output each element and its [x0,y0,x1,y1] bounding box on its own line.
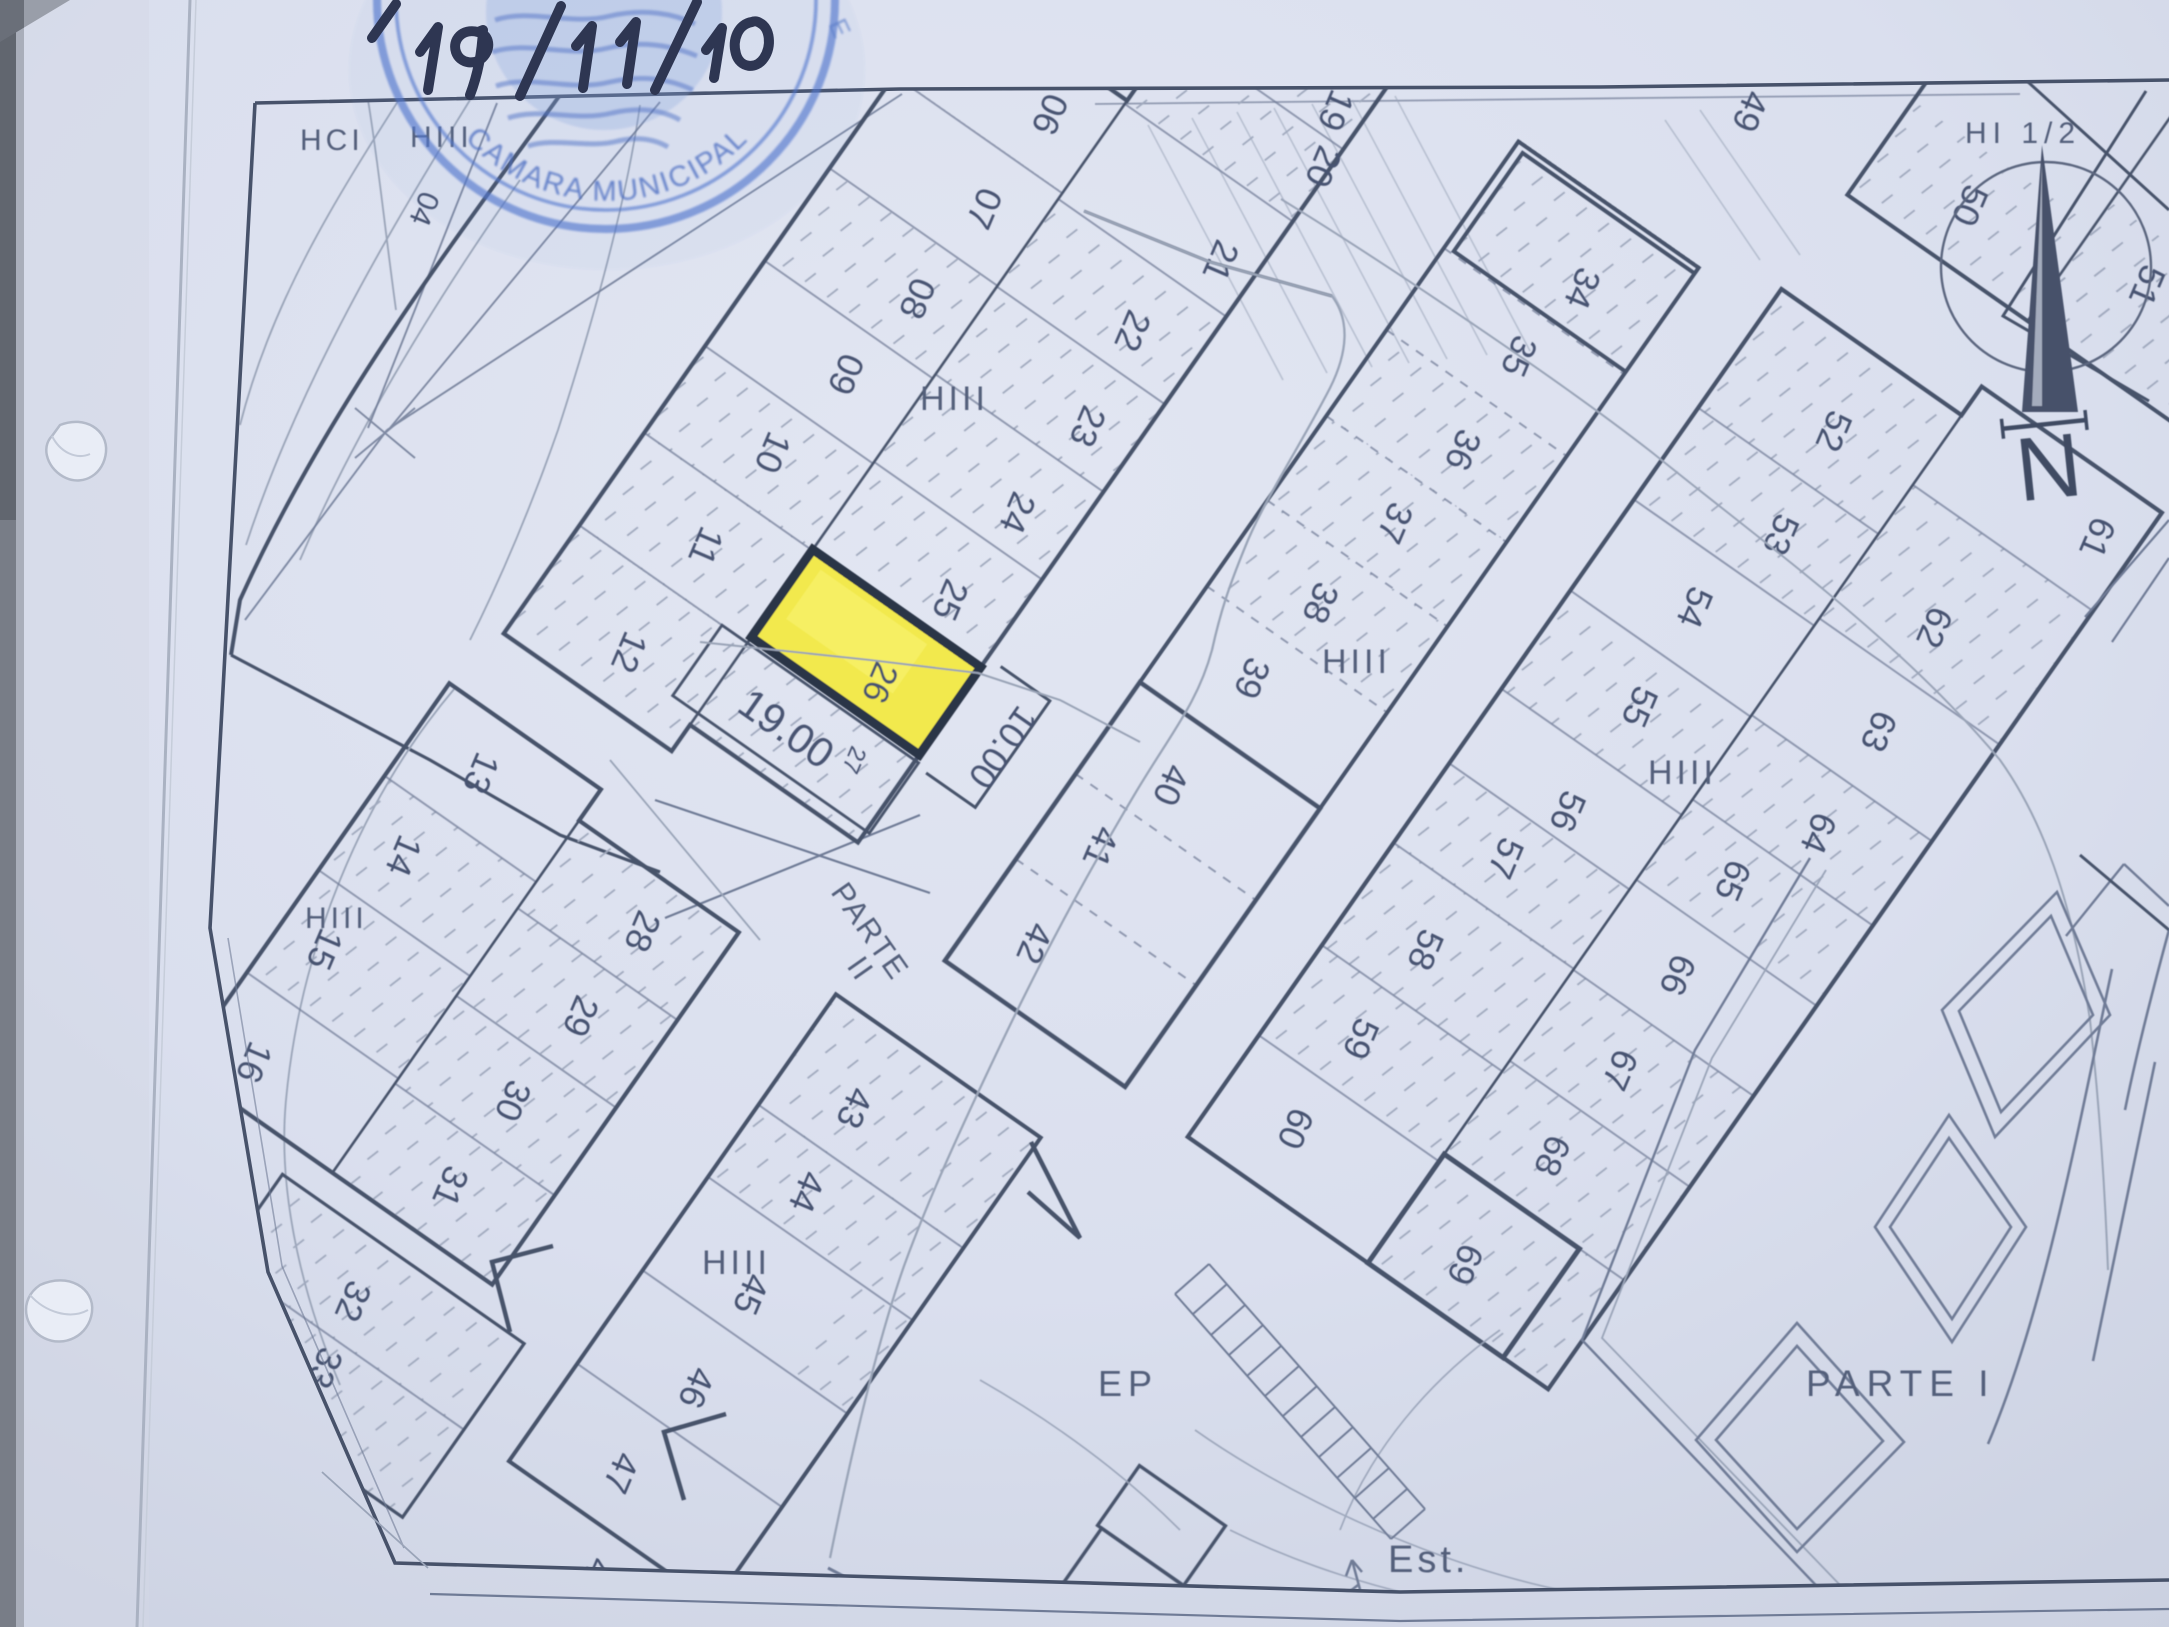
svg-text:HIII: HIII [1322,643,1391,681]
svg-text:N: N [2011,415,2086,521]
svg-text:EP: EP [1098,1363,1158,1404]
svg-text:Est.: Est. [1388,1539,1469,1581]
svg-text:HIII: HIII [305,902,368,935]
svg-text:HCI: HCI [300,124,364,157]
svg-text:HIII: HIII [920,380,989,418]
svg-text:HIII: HIII [1648,754,1717,792]
svg-text:HIII: HIII [702,1244,771,1282]
svg-text:PARTE I: PARTE I [1806,1363,1996,1404]
svg-text:HI 1/2: HI 1/2 [1965,117,2081,150]
